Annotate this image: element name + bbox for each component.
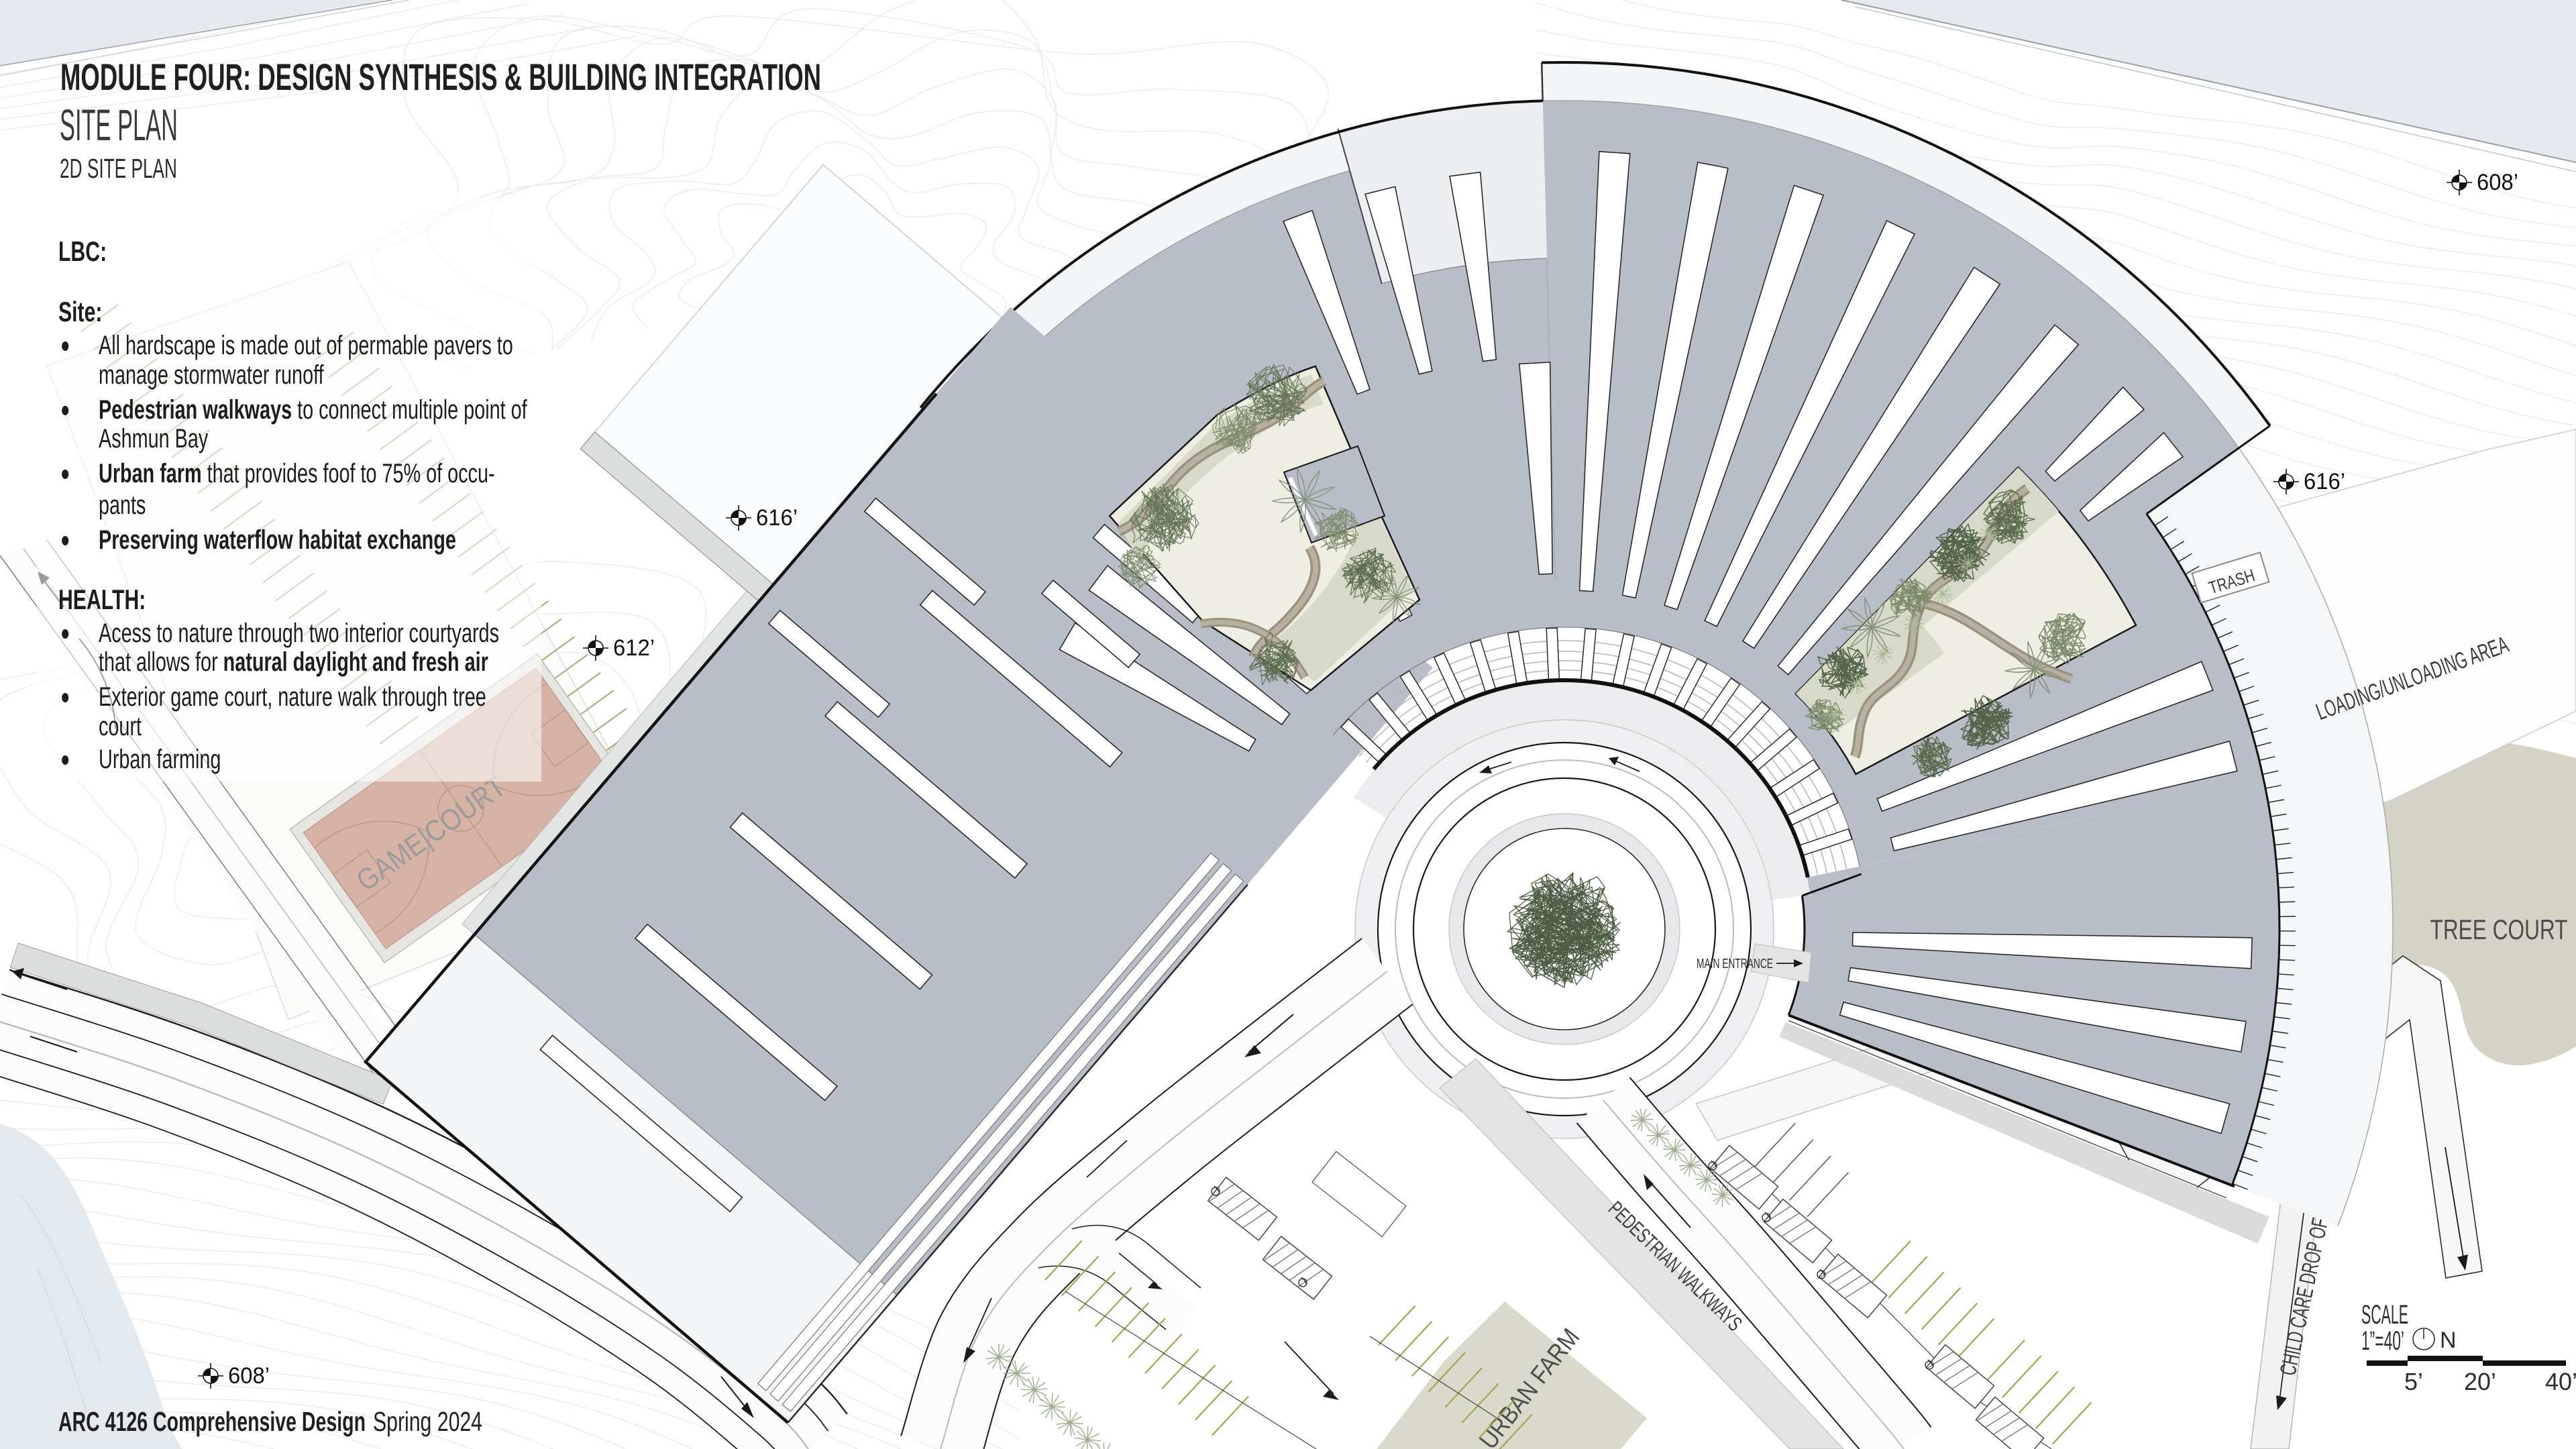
svg-text:LBC:: LBC: [58, 235, 107, 267]
svg-text:court: court [99, 711, 142, 741]
svg-text:MAIN ENTRANCE: MAIN ENTRANCE [1697, 957, 1773, 971]
svg-text:SITE PLAN: SITE PLAN [60, 100, 178, 150]
svg-text:ARC 4126 Comprehensive Design: ARC 4126 Comprehensive Design [58, 1406, 366, 1437]
svg-text:1”=40’: 1”=40’ [2361, 1326, 2404, 1356]
svg-text:Ashmun Bay: Ashmun Bay [99, 423, 209, 453]
svg-text:pants: pants [99, 490, 146, 520]
svg-text:2D SITE PLAN: 2D SITE PLAN [60, 153, 177, 184]
svg-text:Acess to nature through two in: Acess to nature through two interior cou… [99, 618, 499, 648]
svg-text:manage stormwater runoff: manage stormwater runoff [99, 360, 324, 390]
svg-text:Site:: Site: [58, 296, 102, 327]
svg-text:TREE COURT: TREE COURT [2430, 914, 2568, 945]
svg-text:608’: 608’ [2477, 170, 2518, 195]
svg-text:Preserving waterflow habitat e: Preserving waterflow habitat exchange [99, 525, 456, 555]
svg-text:Spring 2024: Spring 2024 [373, 1406, 482, 1437]
svg-text:608’: 608’ [228, 1363, 270, 1389]
svg-text:616’: 616’ [756, 505, 798, 531]
svg-text:MODULE FOUR: DESIGN SYNTHESIS: MODULE FOUR: DESIGN SYNTHESIS & BUILDING… [60, 56, 821, 98]
svg-text:Pedestrian walkways to connect: Pedestrian walkways to connect multiple … [99, 394, 527, 425]
svg-text:All hardscape is made out of p: All hardscape is made out of permable pa… [99, 330, 513, 360]
svg-text:5’: 5’ [2404, 1368, 2423, 1395]
svg-text:612’: 612’ [613, 635, 655, 661]
svg-text:HEALTH:: HEALTH: [58, 584, 146, 615]
svg-text:616’: 616’ [2304, 469, 2345, 494]
svg-text:that allows for natural daylig: that allows for natural daylight and fre… [99, 647, 488, 677]
svg-text:SCALE: SCALE [2361, 1300, 2408, 1330]
svg-text:20’: 20’ [2464, 1368, 2496, 1395]
svg-text:Urban farming: Urban farming [99, 744, 221, 774]
svg-text:N: N [2440, 1328, 2457, 1353]
svg-text:Urban farm that provides foof: Urban farm that provides foof to 75% of … [99, 458, 495, 488]
svg-text:Exterior game court, nature wa: Exterior game court, nature walk through… [99, 682, 486, 712]
svg-text:40’: 40’ [2545, 1368, 2576, 1395]
